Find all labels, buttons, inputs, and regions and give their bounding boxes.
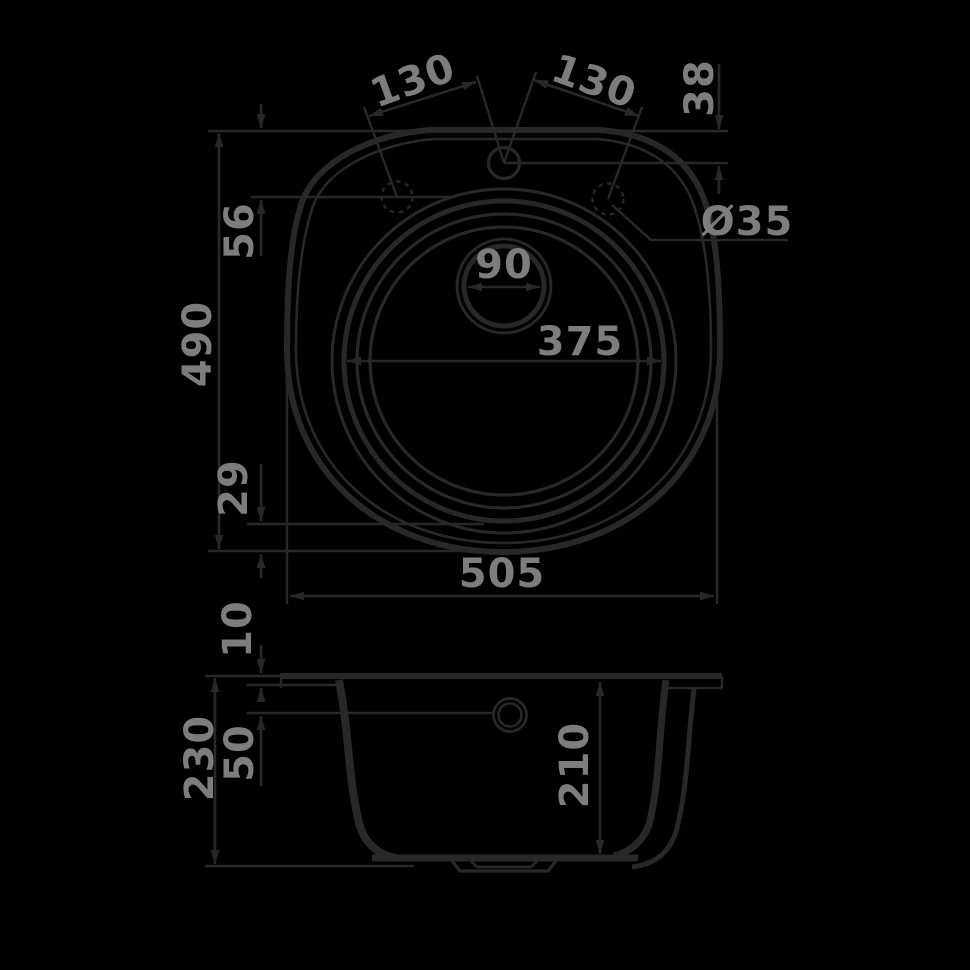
drain-bump-inner xyxy=(471,861,537,867)
dim-line-130-right xyxy=(534,80,639,116)
section-left-wall xyxy=(339,680,396,858)
ext-130-right-hole xyxy=(608,107,642,199)
section-drain-inner xyxy=(499,704,522,727)
ext-130-center-left xyxy=(477,76,504,163)
sink-outline xyxy=(287,130,720,552)
plan-view xyxy=(208,64,788,604)
ext-130-center-right xyxy=(504,72,536,163)
sink-dimension-drawing: 130 130 38 56 490 29 90 375 Ø35 505 10 5… xyxy=(0,0,970,970)
drawing-linework xyxy=(0,0,970,970)
section-right-wall-inner xyxy=(614,680,666,856)
ext-130-left-hole xyxy=(364,107,397,197)
section-view xyxy=(205,645,722,871)
dim-line-130-left xyxy=(369,82,476,116)
